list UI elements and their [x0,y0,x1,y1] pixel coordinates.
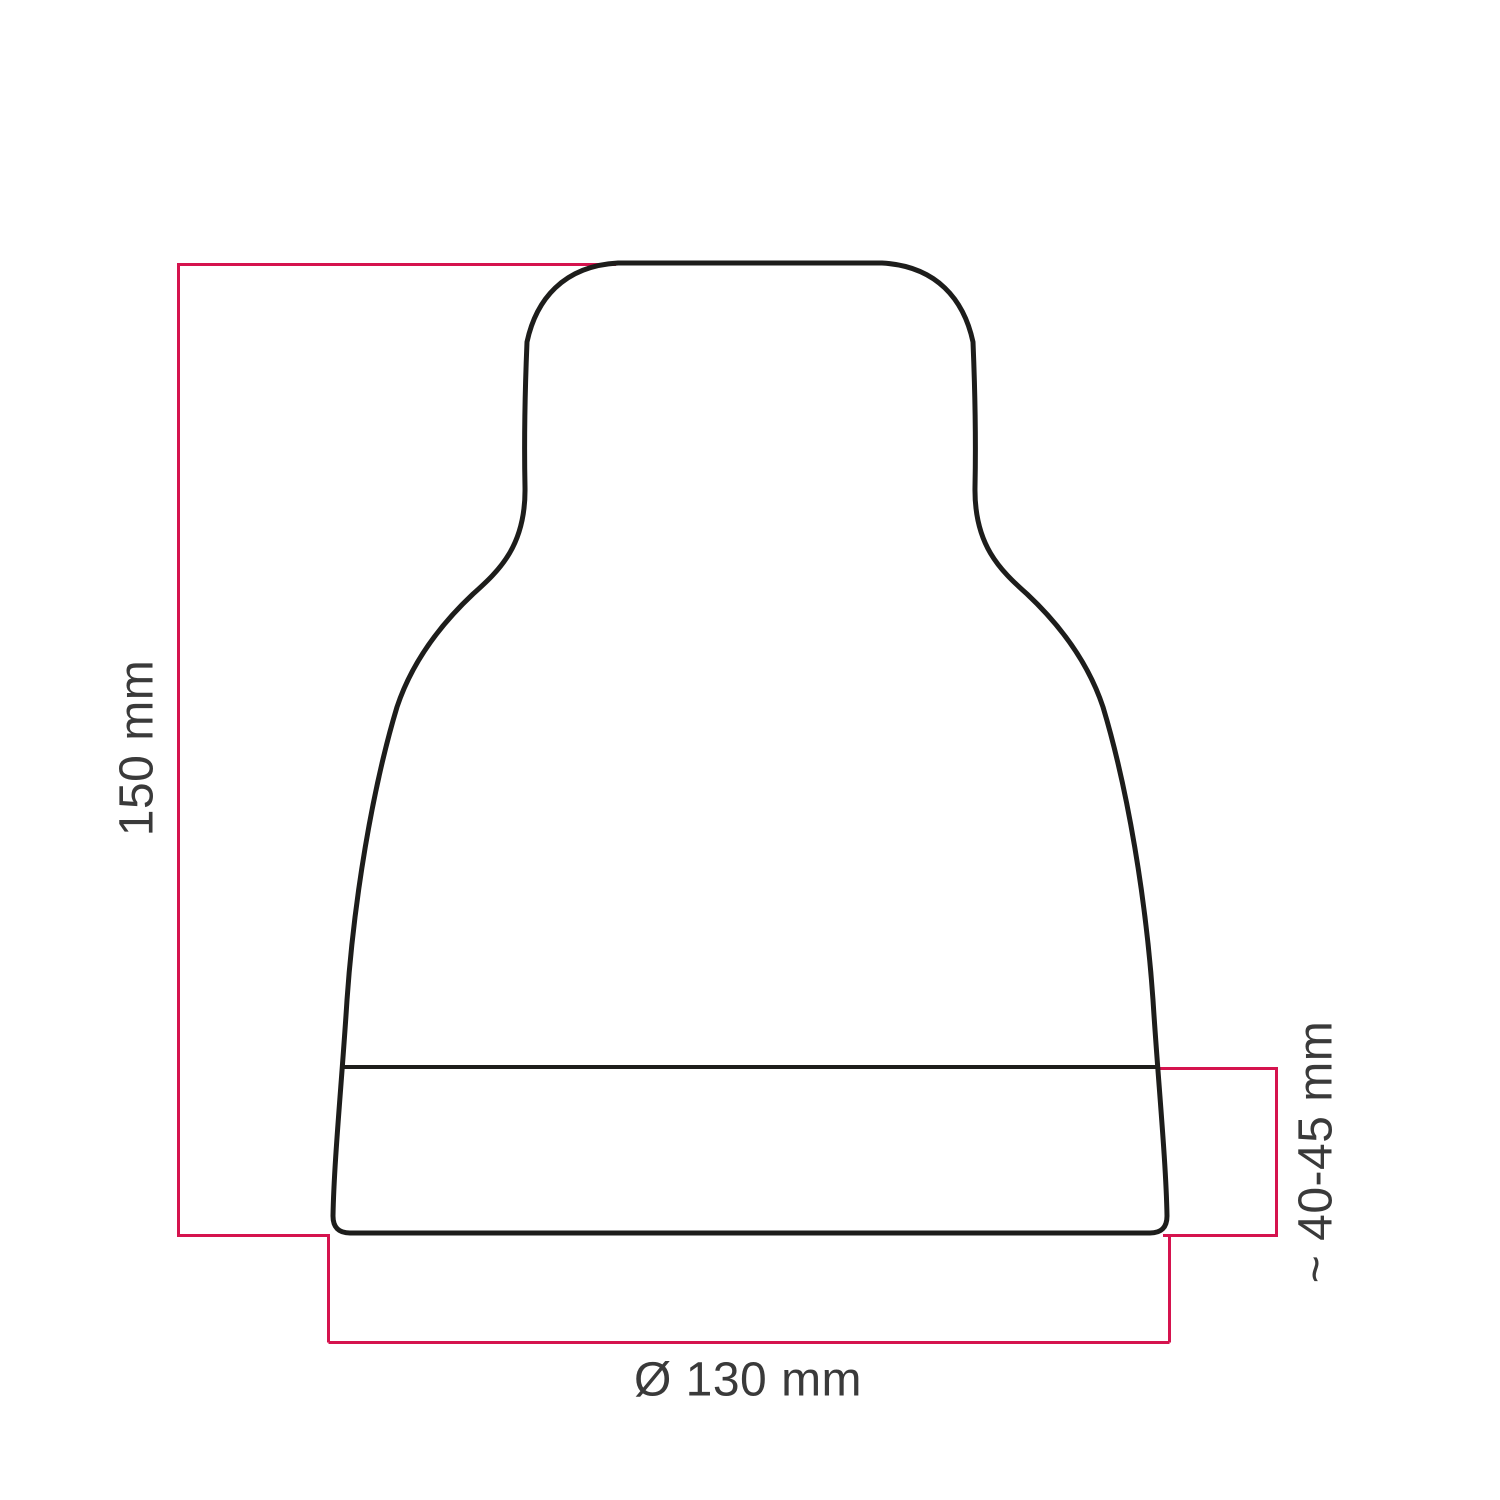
diagram-canvas: 150 mm ~ 40-45 mm Ø 130 mm [0,0,1500,1500]
dimension-diagram: 150 mm ~ 40-45 mm Ø 130 mm [0,0,1500,1500]
band-height-label: ~ 40-45 mm [1290,1021,1343,1283]
height-label: 150 mm [111,660,164,836]
diameter-label: Ø 130 mm [634,1354,862,1407]
